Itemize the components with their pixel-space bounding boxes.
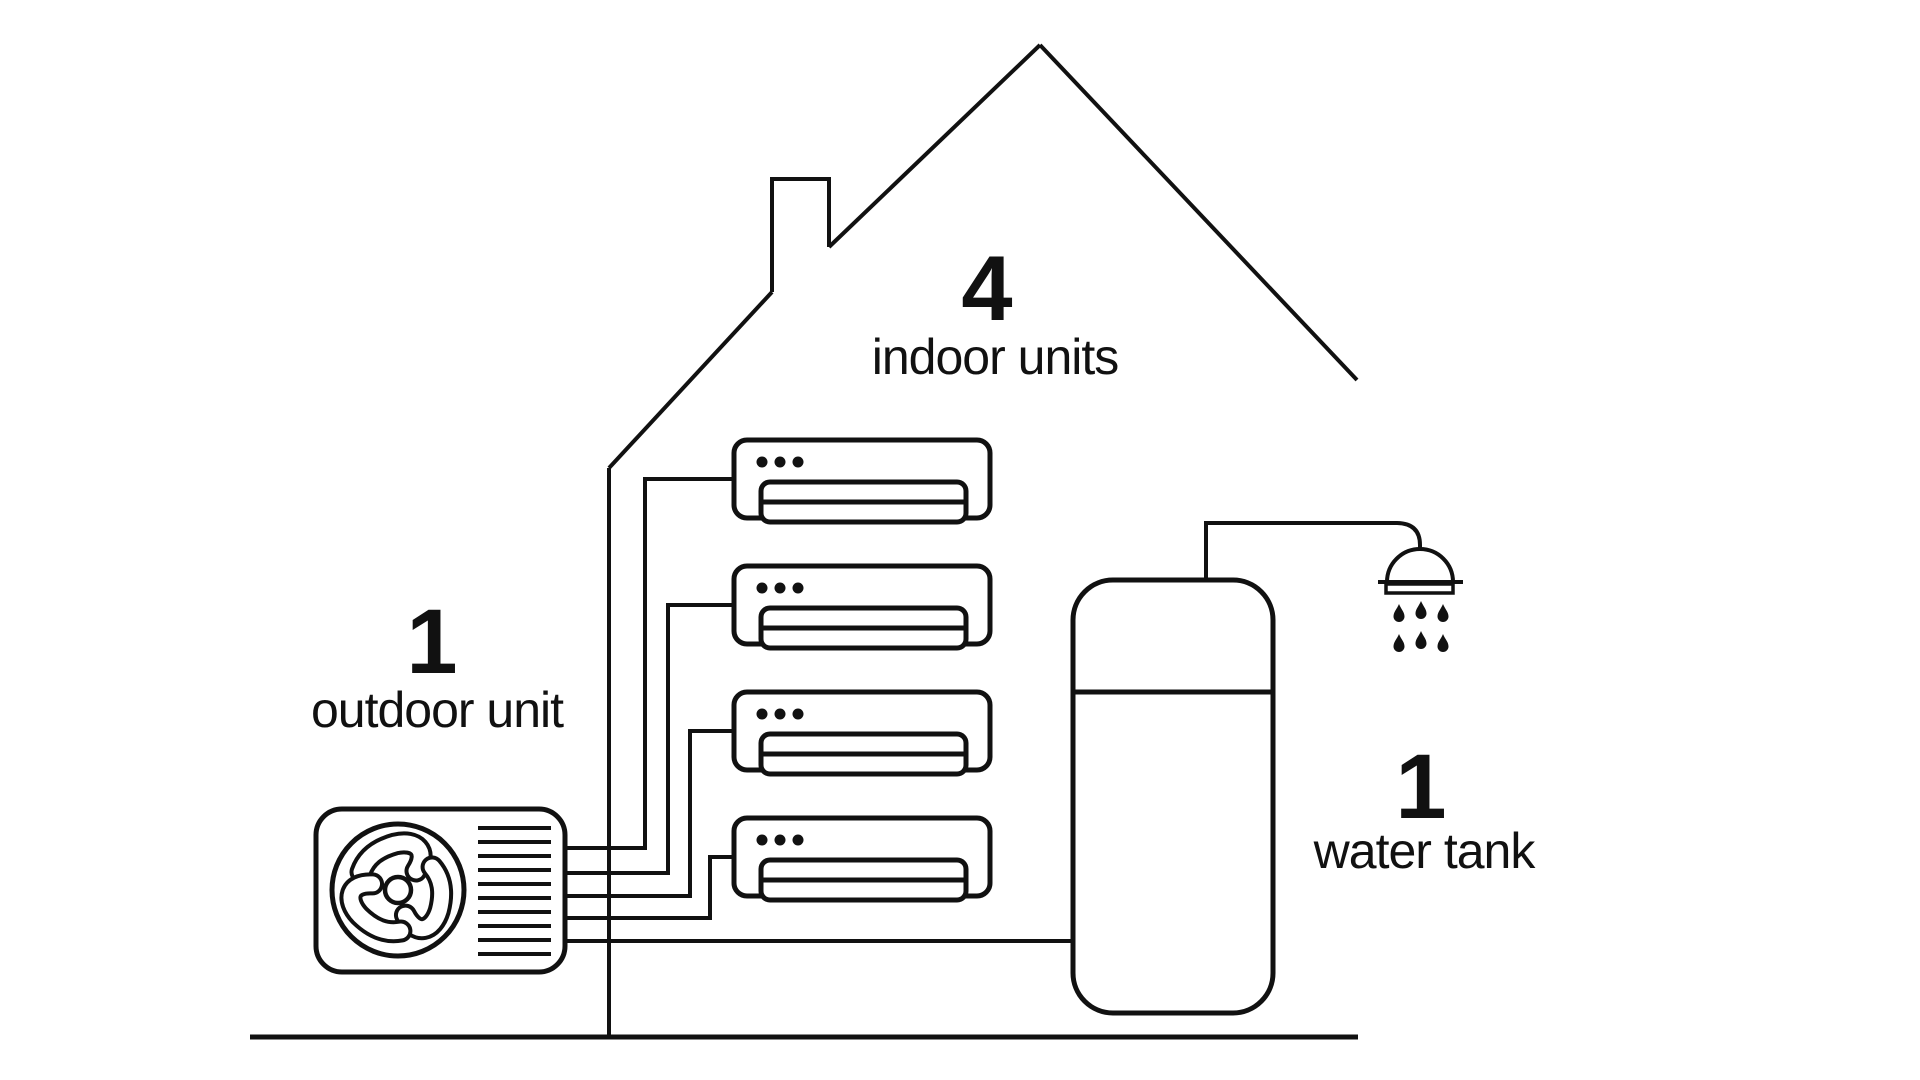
indoor-unit-3 (734, 692, 990, 774)
label-water-tank: 1 water tank (1313, 736, 1537, 879)
indoor-unit-2 (734, 566, 990, 648)
pipe-to-indoor-unit-2 (565, 605, 734, 873)
hvac-system-diagram: 4 indoor units 1 outdoor unit 1 water ta… (0, 0, 1920, 1080)
pipe-to-indoor-unit-4 (565, 857, 734, 918)
water-tank-caption: water tank (1313, 823, 1537, 879)
shower-head-icon (1378, 549, 1463, 593)
indoor-units-count: 4 (961, 238, 1012, 340)
indoor-unit-1 (734, 440, 990, 522)
diagram-canvas: 4 indoor units 1 outdoor unit 1 water ta… (0, 0, 1920, 1080)
outdoor-unit-icon (316, 809, 565, 972)
indoor-units-group (734, 440, 990, 900)
indoor-units-caption: indoor units (872, 329, 1119, 385)
indoor-unit-4 (734, 818, 990, 900)
outdoor-unit-caption: outdoor unit (311, 682, 564, 738)
water-drops-icon (1394, 601, 1449, 652)
label-indoor-units: 4 indoor units (872, 238, 1119, 385)
label-outdoor-unit: 1 outdoor unit (311, 591, 564, 738)
fan-icon (332, 824, 464, 956)
roof-left-upper-slope (829, 45, 1040, 247)
water-tank-icon (1073, 580, 1273, 1013)
outdoor-unit-count: 1 (406, 591, 457, 693)
chimney-icon (772, 179, 829, 292)
pipe-to-indoor-unit-1 (565, 479, 734, 848)
